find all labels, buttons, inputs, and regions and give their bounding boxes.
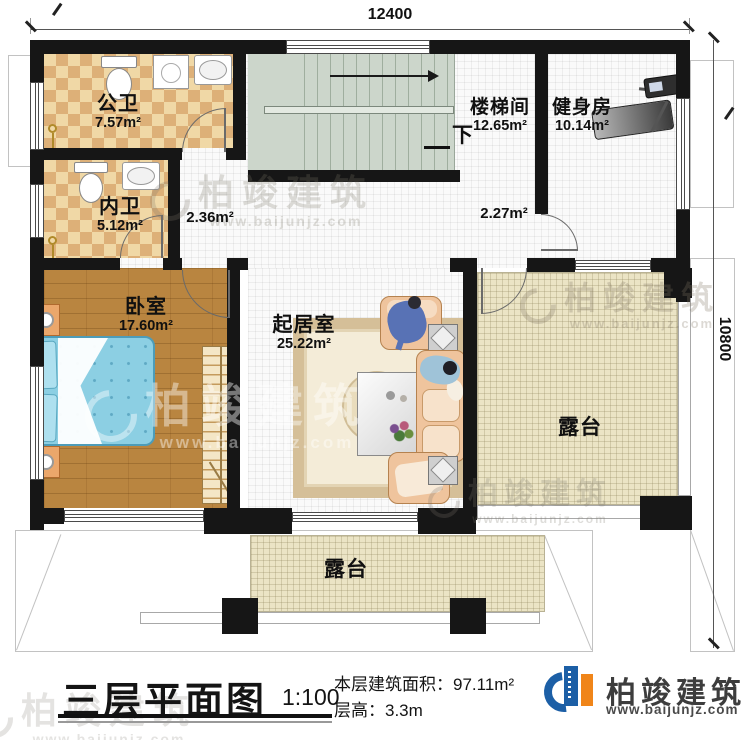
- wall-top: [30, 40, 286, 54]
- room-label-public-bath: 公卫 7.57m²: [76, 93, 160, 132]
- room-name: 起居室: [273, 314, 336, 336]
- table-dot: [400, 395, 407, 402]
- window-top: [286, 40, 430, 54]
- person-head: [408, 296, 421, 309]
- floor-area-label: 本层建筑面积：: [334, 675, 453, 694]
- column-terrace-right: [640, 496, 692, 530]
- eave-top-right: [690, 60, 734, 208]
- room-area: 7.57m²: [95, 115, 141, 131]
- wall-terrace-corner: [664, 268, 692, 298]
- title-underline-thin: [58, 721, 332, 723]
- stair-direction-line: [330, 75, 430, 77]
- side-table-lamp-icon: [430, 457, 455, 482]
- room-area: 12.65m²: [473, 118, 527, 134]
- floor-terrace-bottom: [250, 535, 545, 612]
- brand-website: www.baijunjz.com: [606, 702, 739, 717]
- room-name: 露台: [324, 558, 368, 582]
- area-value: 2.36m²: [186, 210, 234, 227]
- wall-top: [430, 40, 690, 54]
- toilet-tank: [101, 56, 137, 68]
- wall-under-stairs: [248, 170, 460, 182]
- sink-counter: [122, 162, 160, 190]
- side-table: [428, 456, 458, 485]
- dimension-tick: [25, 20, 37, 32]
- logo-building-windows-icon: [568, 671, 571, 701]
- wall-right: [676, 40, 690, 98]
- floor-plan-canvas: 柏竣建筑 www.baijunjz.com 柏竣建筑 www.baijunjz.…: [0, 0, 750, 740]
- table-dot: [386, 391, 395, 400]
- room-name: 卧室: [125, 296, 167, 318]
- window-bedroom-bottom: [64, 510, 204, 522]
- wall-ensuite-right: [168, 160, 180, 258]
- staircase: [248, 54, 455, 170]
- door-leaf-gym: [541, 249, 578, 251]
- wall-bedroom-bottom: [30, 508, 64, 524]
- watermark-logo-icon: [0, 692, 21, 740]
- stair-direction-arrow-icon: [428, 70, 439, 82]
- door-leaf-terrace: [481, 268, 483, 314]
- room-label-living-room: 起居室 25.22m²: [254, 314, 354, 353]
- treadmill-screen: [649, 81, 663, 92]
- room-name: 公卫: [97, 93, 139, 115]
- room-name: 健身房: [552, 97, 612, 118]
- area-value: 2.27m²: [480, 206, 528, 223]
- window-gym-right: [676, 98, 690, 210]
- room-label-bedroom: 卧室 17.60m²: [104, 296, 188, 335]
- washer-drum-icon: [161, 63, 181, 83]
- room-name: 楼梯间: [470, 97, 530, 118]
- window-gym-terrace: [575, 260, 651, 270]
- side-table-lamp-icon: [430, 325, 455, 350]
- room-area: 5.12m²: [97, 218, 143, 234]
- terrace-railing-right: [678, 296, 691, 496]
- stair-handrail: [264, 106, 454, 114]
- sink-basin-icon: [127, 167, 155, 185]
- floor-terrace-right: [477, 272, 678, 505]
- dimension-line-top: [30, 29, 690, 30]
- column-terrace-bottom-right: [450, 598, 486, 634]
- room-name: 露台: [558, 416, 602, 440]
- wall-gym-bottom: [651, 258, 676, 272]
- room-label-terrace-right: 露台: [544, 416, 616, 440]
- terrace-railing-bottom-right: [477, 505, 641, 519]
- room-name: 内卫: [99, 196, 141, 218]
- dimension-right-value: 10800: [715, 309, 733, 369]
- toilet-tank: [74, 162, 108, 173]
- window-ensuite-bath: [30, 184, 44, 238]
- stair-cut-mark: [424, 146, 450, 149]
- window-living-bottom: [292, 512, 418, 522]
- down-text: 下: [452, 124, 474, 148]
- wall-living-right: [463, 268, 477, 520]
- logo-building-blue-icon: [564, 666, 578, 706]
- plan-scale: 1:100: [282, 684, 340, 711]
- room-label-ensuite-bath: 内卫 5.12m²: [78, 196, 162, 235]
- floor-height-row: 层高：3.3m: [334, 698, 514, 724]
- window-public-bath: [30, 82, 44, 150]
- wall-bedroom-top: [30, 258, 120, 270]
- hall-area-label: 2.27m²: [476, 206, 532, 223]
- floor-drain-icon: [48, 236, 57, 245]
- person-head: [443, 361, 457, 375]
- column-terrace-bottom-left: [222, 598, 258, 634]
- wall-bedroom-top: [163, 258, 182, 270]
- wall-public-bath-right: [233, 40, 246, 160]
- wall-left: [30, 40, 44, 82]
- dimension-line-right: [713, 40, 714, 648]
- room-area: 25.22m²: [277, 336, 331, 352]
- table-flowers: [386, 419, 414, 443]
- floor-height-value: 3.3m: [385, 701, 423, 720]
- floor-area-row: 本层建筑面积：97.11m²: [334, 672, 514, 698]
- stairs-down-label: 下: [448, 124, 478, 148]
- title-underline: [58, 714, 332, 718]
- sink-basin-icon: [199, 60, 227, 80]
- hall-area-label: 2.36m²: [182, 210, 238, 227]
- door-leaf-public-bath: [224, 108, 226, 152]
- floor-drain-icon: [48, 124, 57, 133]
- floor-area-value: 97.11m²: [453, 675, 514, 694]
- wall-hall-terrace: [527, 258, 575, 272]
- logo-building-orange-icon: [581, 674, 593, 706]
- washing-machine: [153, 55, 189, 89]
- room-area: 17.60m²: [119, 318, 173, 334]
- wall-bath-divider: [30, 148, 182, 160]
- window-bedroom-left: [30, 366, 44, 480]
- dimension-tick: [708, 31, 720, 43]
- floor-height-label: 层高：: [334, 701, 385, 720]
- room-area: 10.14m²: [555, 118, 609, 134]
- room-label-terrace-bottom: 露台: [310, 558, 382, 582]
- dimension-tick: [52, 3, 62, 16]
- door-leaf-bedroom: [228, 270, 230, 318]
- floor-info: 本层建筑面积：97.11m² 层高：3.3m: [334, 672, 514, 724]
- brand-logo-icon: [544, 664, 602, 722]
- sink-counter: [194, 55, 232, 85]
- side-table: [428, 324, 458, 353]
- watermark-url: www.baijunjz.com: [33, 731, 186, 740]
- room-label-gym: 健身房 10.14m²: [536, 97, 628, 135]
- wall-living-bottom: [204, 508, 292, 534]
- dimension-top-value: 12400: [330, 6, 450, 24]
